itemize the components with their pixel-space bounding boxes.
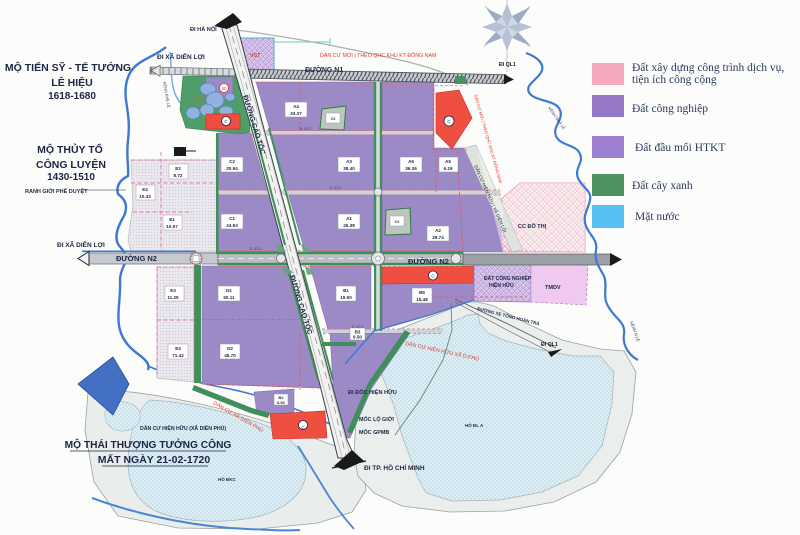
svg-text:1618-1680: 1618-1680 xyxy=(48,91,96,102)
svg-text:D1: D1 xyxy=(226,288,232,293)
svg-text:DÂN CƯ HIỆN HỮU (XÃ DIÊN PHÚ): DÂN CƯ HIỆN HỮU (XÃ DIÊN PHÚ) xyxy=(140,424,226,432)
svg-text:15.48: 15.48 xyxy=(416,297,428,302)
svg-text:20.94: 20.94 xyxy=(226,166,238,171)
svg-text:A2: A2 xyxy=(435,228,441,233)
svg-text:71.42: 71.42 xyxy=(172,353,184,358)
svg-text:E4: E4 xyxy=(142,187,148,192)
svg-text:CÔNG LUYỆN: CÔNG LUYỆN xyxy=(36,158,106,171)
svg-text:8.72: 8.72 xyxy=(174,173,183,178)
svg-text:ĐI QL1: ĐI QL1 xyxy=(499,62,516,68)
svg-text:ĐI QL1: ĐI QL1 xyxy=(541,342,558,348)
svg-text:RANH GIỚI PHÊ DUYỆT: RANH GIỚI PHÊ DUYỆT xyxy=(25,187,88,195)
svg-text:ĐI XÃ DIÊN LỢI: ĐI XÃ DIÊN LỢI xyxy=(57,240,105,249)
svg-text:24.93: 24.93 xyxy=(226,223,238,228)
svg-text:ĐI HÀ NỘI: ĐI HÀ NỘI xyxy=(190,25,217,33)
svg-text:E2: E2 xyxy=(175,166,181,171)
svg-text:50: 50 xyxy=(221,86,227,91)
svg-text:19.50: 19.50 xyxy=(340,295,352,300)
svg-text:B1: B1 xyxy=(343,288,349,293)
svg-text:Đất xây dựng công trình dịch v: Đất xây dựng công trình dịch vụ, xyxy=(632,61,784,74)
svg-text:HỒ ĐKC: HỒ ĐKC xyxy=(218,476,236,482)
svg-text:CX: CX xyxy=(331,117,337,121)
svg-text:Đất công nghiệp: Đất công nghiệp xyxy=(632,102,708,115)
svg-text:38.40: 38.40 xyxy=(343,166,355,171)
svg-text:A5: A5 xyxy=(445,159,451,164)
svg-text:26.38: 26.38 xyxy=(343,223,355,228)
svg-text:10.43: 10.43 xyxy=(139,194,151,199)
svg-text:Đất đầu mối HTKT: Đất đầu mối HTKT xyxy=(635,141,725,154)
svg-text:LÊ HIỆU: LÊ HIỆU xyxy=(51,76,92,89)
svg-text:Đất cây xanh: Đất cây xanh xyxy=(632,179,693,192)
svg-text:1430-1510: 1430-1510 xyxy=(47,172,95,183)
svg-text:E1: E1 xyxy=(169,217,175,222)
svg-text:Mặt nước: Mặt nước xyxy=(635,211,680,223)
svg-text:CC ĐÔ THỊ: CC ĐÔ THỊ xyxy=(518,222,547,230)
svg-text:ĐI ĐỐC HIỆN HỮU: ĐI ĐỐC HIỆN HỮU xyxy=(348,388,397,396)
svg-text:ĐƯỜNG N1: ĐƯỜNG N1 xyxy=(305,65,343,74)
svg-text:tiện ích công cộng: tiện ích công cộng xyxy=(632,74,717,86)
svg-text:ĐI XÃ DIÊN LỢI: ĐI XÃ DIÊN LỢI xyxy=(157,52,205,61)
svg-text:Đ. SỐ 2: Đ. SỐ 2 xyxy=(330,185,342,190)
svg-text:E3: E3 xyxy=(170,288,176,293)
svg-text:6.19: 6.19 xyxy=(444,166,453,171)
svg-text:A3: A3 xyxy=(346,159,352,164)
svg-text:D2: D2 xyxy=(227,346,233,351)
svg-text:MỐC LỘ GIỚI: MỐC LỘ GIỚI xyxy=(359,415,394,423)
svg-text:MẤT NGÀY 21-02-1720: MẤT NGÀY 21-02-1720 xyxy=(98,453,211,466)
svg-text:Đ. SỐ 4: Đ. SỐ 4 xyxy=(352,324,364,329)
svg-text:MỘ THÁI THƯỢNG TƯỞNG CÔNG: MỘ THÁI THƯỢNG TƯỞNG CÔNG xyxy=(65,438,232,451)
svg-text:B5: B5 xyxy=(419,290,425,295)
svg-text:MỐC GPMB: MỐC GPMB xyxy=(359,429,389,436)
svg-text:MỘ TIẾN SỸ - TỂ TƯỚNG: MỘ TIẾN SỸ - TỂ TƯỚNG xyxy=(5,61,131,74)
svg-text:CX: CX xyxy=(395,220,401,224)
svg-text:ĐƯỜNG N2: ĐƯỜNG N2 xyxy=(408,257,449,266)
svg-text:Đ. SỐ 1: Đ. SỐ 1 xyxy=(300,126,312,131)
svg-text:A1: A1 xyxy=(346,216,352,221)
svg-text:MỘ THỦY TỔ: MỘ THỦY TỔ xyxy=(37,143,103,156)
svg-text:HỒ ĐL A: HỒ ĐL A xyxy=(465,422,484,428)
svg-text:45.70: 45.70 xyxy=(224,353,236,358)
svg-text:VGT: VGT xyxy=(250,53,260,59)
svg-text:33.37: 33.37 xyxy=(290,111,302,116)
svg-text:36.36: 36.36 xyxy=(405,166,417,171)
svg-text:8.92: 8.92 xyxy=(277,400,286,405)
svg-text:C1: C1 xyxy=(229,216,235,221)
svg-text:Đ. SỐ 3: Đ. SỐ 3 xyxy=(250,246,262,251)
svg-text:29.74: 29.74 xyxy=(432,235,444,240)
svg-text:A6: A6 xyxy=(408,159,414,164)
svg-text:ĐẤT CÔNG NGHIỆP: ĐẤT CÔNG NGHIỆP xyxy=(484,274,532,282)
svg-text:50.11: 50.11 xyxy=(223,295,235,300)
svg-text:11.25: 11.25 xyxy=(167,295,179,300)
svg-text:ĐƯỜNG N2: ĐƯỜNG N2 xyxy=(116,254,157,263)
svg-text:DÂN CƯ MỚI | THEO QHC KHU KT Đ: DÂN CƯ MỚI | THEO QHC KHU KT ĐỒNG NAM xyxy=(320,52,437,59)
svg-text:HIỆN HỮU: HIỆN HỮU xyxy=(489,281,514,289)
svg-text:10.57: 10.57 xyxy=(166,224,178,229)
svg-text:6.50: 6.50 xyxy=(353,335,362,340)
svg-text:C2: C2 xyxy=(229,159,235,164)
svg-text:A4: A4 xyxy=(293,104,299,109)
svg-text:E4: E4 xyxy=(175,346,181,351)
svg-text:TMDV: TMDV xyxy=(545,285,561,291)
